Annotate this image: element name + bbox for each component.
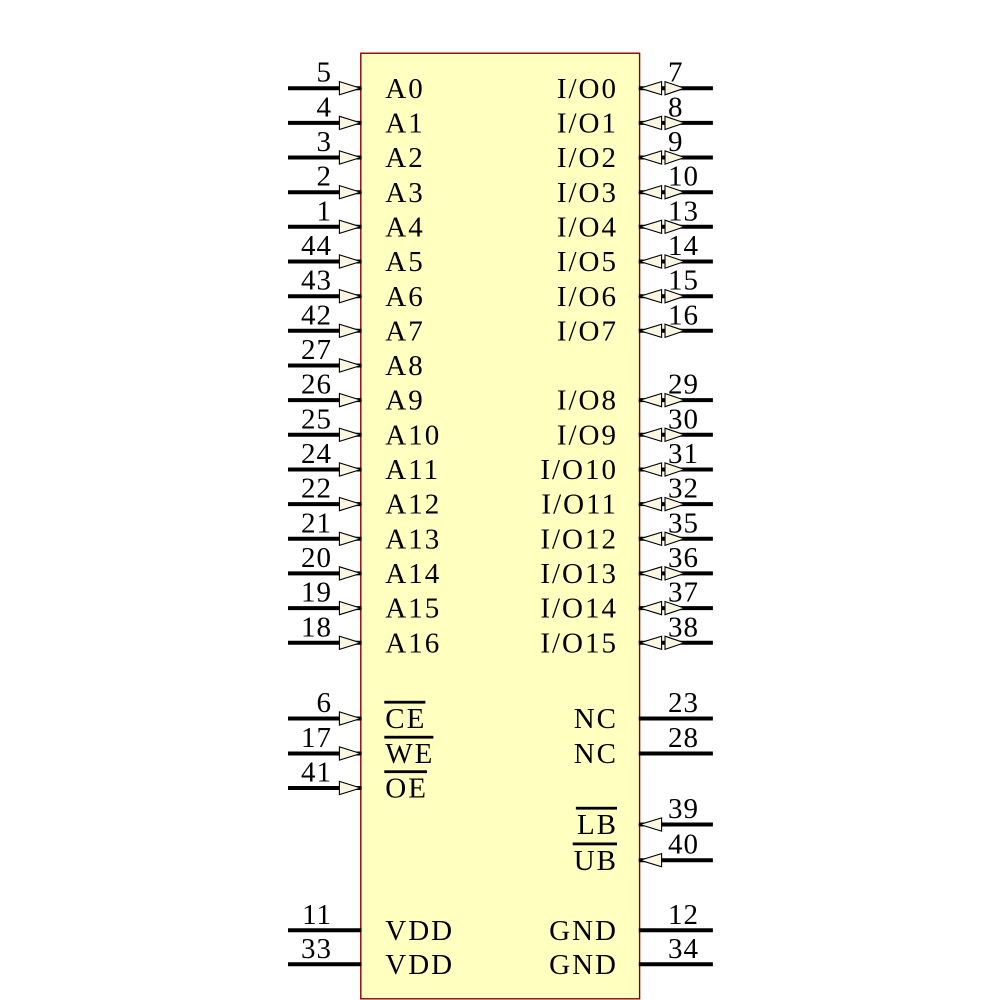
svg-text:GND: GND [549, 949, 618, 981]
svg-text:37: 37 [668, 577, 699, 609]
svg-text:44: 44 [301, 230, 332, 262]
svg-text:4: 4 [317, 91, 333, 123]
svg-text:17: 17 [301, 722, 332, 754]
svg-text:A16: A16 [385, 627, 441, 659]
svg-text:32: 32 [668, 473, 699, 505]
svg-text:A1: A1 [385, 108, 424, 140]
svg-text:I/O15: I/O15 [540, 627, 618, 659]
svg-text:5: 5 [317, 57, 333, 89]
svg-text:12: 12 [668, 899, 699, 931]
svg-text:36: 36 [668, 542, 699, 574]
svg-text:8: 8 [668, 91, 684, 123]
svg-text:CE: CE [385, 703, 426, 735]
svg-text:7: 7 [668, 57, 684, 89]
svg-text:11: 11 [302, 899, 332, 931]
svg-text:A9: A9 [385, 385, 424, 417]
svg-text:3: 3 [317, 126, 333, 158]
svg-text:I/O7: I/O7 [557, 315, 618, 347]
svg-text:NC: NC [574, 738, 618, 770]
svg-text:19: 19 [301, 577, 332, 609]
svg-text:25: 25 [301, 403, 332, 435]
svg-text:1: 1 [317, 195, 333, 227]
svg-text:38: 38 [668, 611, 699, 643]
svg-text:42: 42 [301, 299, 332, 331]
svg-text:A13: A13 [385, 523, 441, 555]
svg-text:34: 34 [668, 933, 699, 965]
svg-text:VDD: VDD [385, 915, 454, 947]
svg-text:A7: A7 [385, 315, 424, 347]
svg-text:I/O11: I/O11 [541, 489, 618, 521]
svg-text:A15: A15 [385, 593, 441, 625]
svg-text:I/O6: I/O6 [557, 281, 618, 313]
svg-text:A11: A11 [385, 454, 440, 486]
svg-text:I/O0: I/O0 [557, 73, 618, 105]
svg-text:6: 6 [317, 687, 333, 719]
svg-text:16: 16 [668, 299, 699, 331]
svg-text:13: 13 [668, 195, 699, 227]
svg-text:OE: OE [385, 773, 428, 805]
svg-text:9: 9 [668, 126, 684, 158]
svg-text:I/O8: I/O8 [557, 385, 618, 417]
svg-text:A5: A5 [385, 246, 424, 278]
svg-text:I/O12: I/O12 [540, 523, 618, 555]
svg-text:26: 26 [301, 369, 332, 401]
svg-text:40: 40 [668, 829, 699, 861]
svg-text:A4: A4 [385, 211, 424, 243]
svg-text:I/O14: I/O14 [540, 593, 618, 625]
svg-text:20: 20 [301, 542, 332, 574]
svg-text:I/O1: I/O1 [557, 108, 618, 140]
svg-text:33: 33 [301, 933, 332, 965]
svg-text:27: 27 [301, 334, 332, 366]
svg-text:A0: A0 [385, 73, 424, 105]
svg-text:NC: NC [574, 703, 618, 735]
svg-text:I/O9: I/O9 [557, 419, 618, 451]
svg-text:21: 21 [301, 507, 332, 539]
svg-text:A12: A12 [385, 489, 441, 521]
svg-text:I/O4: I/O4 [557, 211, 618, 243]
svg-text:24: 24 [301, 438, 332, 470]
svg-text:VDD: VDD [385, 949, 454, 981]
svg-text:A2: A2 [385, 142, 424, 174]
svg-text:10: 10 [668, 161, 699, 193]
svg-text:I/O10: I/O10 [540, 454, 618, 486]
svg-text:18: 18 [301, 611, 332, 643]
svg-text:29: 29 [668, 369, 699, 401]
svg-text:A10: A10 [385, 419, 441, 451]
svg-text:31: 31 [668, 438, 699, 470]
svg-text:I/O2: I/O2 [557, 142, 618, 174]
svg-text:28: 28 [668, 722, 699, 754]
svg-text:2: 2 [317, 161, 333, 193]
svg-text:LB: LB [577, 809, 618, 841]
svg-text:43: 43 [301, 265, 332, 297]
svg-text:30: 30 [668, 403, 699, 435]
svg-text:WE: WE [385, 738, 434, 770]
svg-text:A8: A8 [385, 350, 424, 382]
svg-text:23: 23 [668, 687, 699, 719]
svg-text:I/O3: I/O3 [557, 177, 618, 209]
svg-text:I/O5: I/O5 [557, 246, 618, 278]
svg-text:22: 22 [301, 473, 332, 505]
svg-text:I/O13: I/O13 [540, 558, 618, 590]
svg-text:15: 15 [668, 265, 699, 297]
svg-text:14: 14 [668, 230, 699, 262]
svg-text:A14: A14 [385, 558, 441, 590]
svg-text:39: 39 [668, 793, 699, 825]
svg-text:A6: A6 [385, 281, 424, 313]
svg-text:41: 41 [301, 757, 332, 789]
svg-text:GND: GND [549, 915, 618, 947]
svg-text:A3: A3 [385, 177, 424, 209]
svg-text:UB: UB [574, 845, 618, 877]
svg-text:35: 35 [668, 507, 699, 539]
